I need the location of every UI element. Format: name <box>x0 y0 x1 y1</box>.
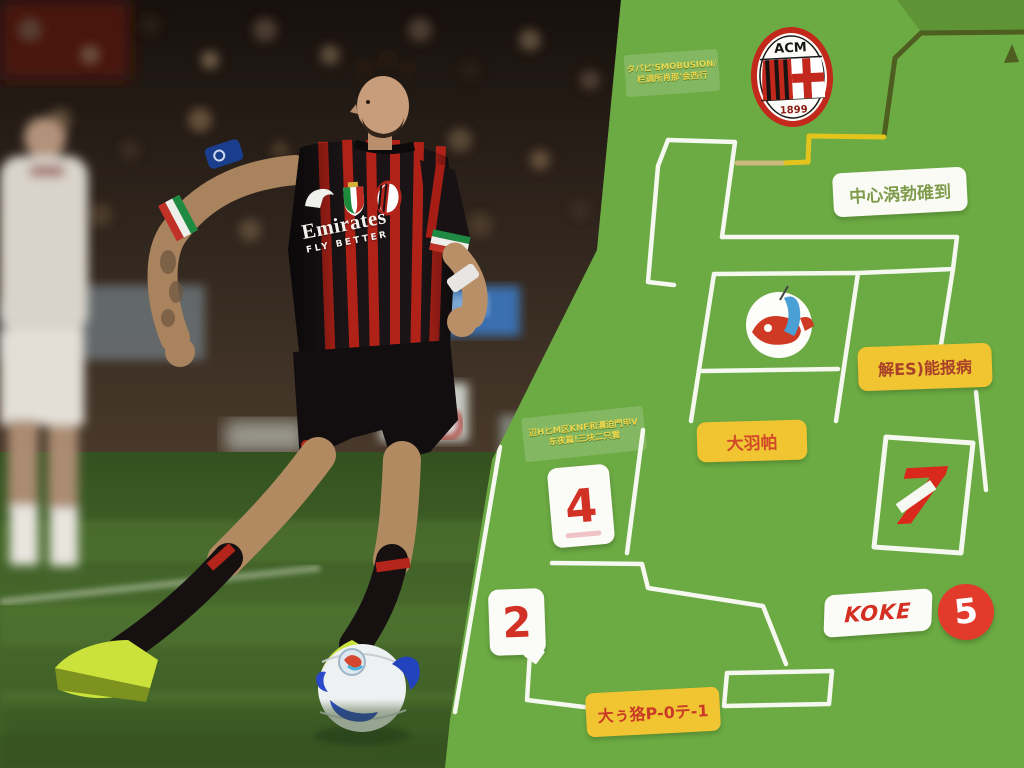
sports-infographic: ACM 1899 Emirates FLY BETTER タパピ'SMOBUSI… <box>0 0 1024 768</box>
label-mid: 大羽帕 <box>696 420 807 463</box>
player-name-label: KOKE <box>823 588 932 638</box>
crest-acronym: ACM <box>774 40 807 57</box>
crest-year: 1899 <box>780 104 808 116</box>
label-center-top: 中心涡勃碓到 <box>832 167 968 218</box>
number-card-2: 2 <box>488 588 546 656</box>
number-5: 5 <box>952 591 980 633</box>
note-top-left: タパピ'SMOBUSION/ 栏调所肖那'会西行 <box>624 49 721 97</box>
label-bottom: 大ぅ狢P-0テ-1 <box>585 687 721 738</box>
number-7-box: 7 <box>866 438 972 553</box>
ac-milan-crest: ACM 1899 <box>752 28 833 126</box>
red-banner-blur <box>0 0 130 80</box>
label-right: 解ES)能报病 <box>857 343 992 392</box>
number-card-4: 4 <box>547 463 616 548</box>
fist <box>447 307 477 337</box>
number-4: 4 <box>563 478 600 535</box>
number-2: 2 <box>502 597 533 647</box>
